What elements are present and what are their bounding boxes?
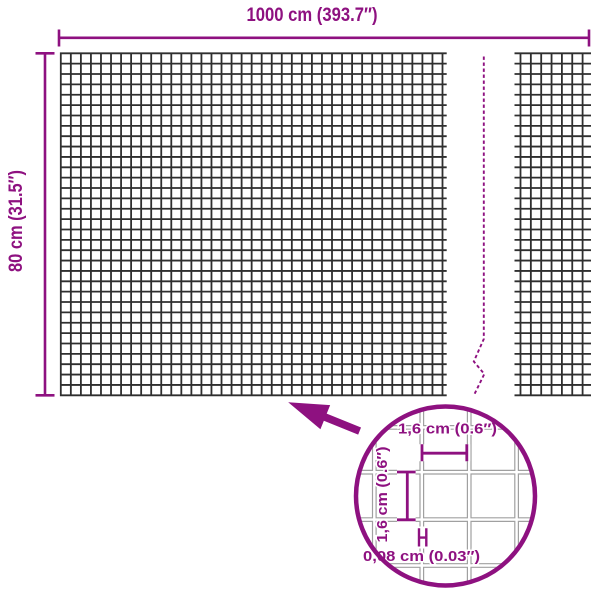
svg-text:1000 cm (393.7″): 1000 cm (393.7″) — [247, 5, 378, 26]
svg-text:1,6 cm (0.6″): 1,6 cm (0.6″) — [375, 446, 391, 542]
svg-text:1,6 cm (0.6″): 1,6 cm (0.6″) — [398, 422, 497, 438]
svg-text:80 cm (31.5″): 80 cm (31.5″) — [6, 170, 27, 272]
